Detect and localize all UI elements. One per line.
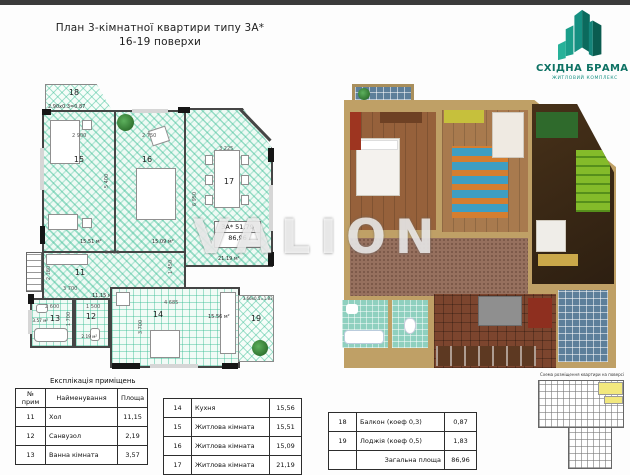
chair5-room17 — [241, 175, 249, 185]
chair3-room17 — [205, 195, 213, 205]
site-plan-bottom-wing — [568, 427, 612, 469]
row-name: Кухня — [192, 399, 270, 418]
floorplan-2d: 18 2.90х0.3=0.87 15 2 900 15.51 м² 16 2 … — [0, 0, 310, 380]
explication-title: Експлікація приміщень — [50, 377, 136, 385]
col-num: № прим — [16, 389, 46, 408]
table-header-row: № прим Найменування Площа — [16, 389, 148, 408]
row-area: 2,19 — [118, 427, 148, 446]
loggia-area-calc: 3.66х0.5=1.83 — [243, 297, 273, 302]
render-kids-wardrobe — [492, 112, 524, 158]
counter-room14 — [220, 292, 236, 354]
chair2-room17 — [205, 175, 213, 185]
hall-niche — [26, 252, 42, 292]
dim-hall-vert2: 1 450 — [168, 260, 174, 274]
row-name: Лоджія (коеф 0,5) — [357, 432, 445, 451]
dim-room13: 2 600 — [45, 304, 59, 310]
row-name: Ванна кімната — [46, 446, 118, 465]
bed-room16 — [136, 168, 176, 220]
room-15-area: 15.51 м² — [80, 239, 102, 245]
chair1-room17 — [205, 155, 213, 165]
room-11-number: 11 — [72, 268, 88, 277]
dim-room17: 3 225 — [219, 146, 233, 152]
room-17-number: 17 — [220, 177, 238, 186]
table-row: 16 Житлова кімната 15,09 — [164, 437, 302, 456]
total-label: Загальна площа — [357, 451, 445, 470]
room-14-number: 14 — [150, 310, 166, 319]
render-desk-white — [536, 220, 566, 252]
col-area: Площа — [118, 389, 148, 408]
render-kids-bench — [444, 110, 484, 123]
dim-hall-vert: 2 180 — [46, 266, 52, 280]
window-room13-left — [28, 310, 32, 334]
render-bathroom — [342, 300, 388, 348]
table-row: 19 Лоджія (коеф 0,5) 1,83 — [329, 432, 477, 451]
render-sink — [346, 304, 358, 314]
wardrobe-hall — [46, 254, 88, 265]
plant-loggia — [252, 340, 268, 356]
total-area: 86,96 — [445, 451, 477, 470]
row-area: 0,87 — [445, 413, 477, 432]
pier-1 — [42, 109, 51, 115]
row-num: 16 — [164, 437, 192, 456]
chair4-room17 — [241, 155, 249, 165]
chair-room15 — [82, 218, 92, 228]
dim-room15: 2 900 — [72, 133, 86, 139]
room-18-number: 18 — [66, 88, 82, 97]
row-num: 12 — [16, 427, 46, 446]
table-row: 14 Кухня 15,56 — [164, 399, 302, 418]
room-15-number: 15 — [70, 155, 88, 164]
dim-rooms-13-12-vert: 1 700 — [66, 312, 72, 326]
table-row: 13 Ванна кімната 3,57 — [16, 446, 148, 465]
logo-building-icon — [556, 8, 614, 62]
row-area: 1,83 — [445, 432, 477, 451]
render-balcony-bottom — [558, 290, 608, 362]
row-num: 13 — [16, 446, 46, 465]
brochure-page: План 3-кімнатної квартири типу 3А* 16-19… — [0, 0, 630, 475]
dim-rooms-15-16-vert: 5 400 — [104, 174, 110, 188]
pier-7 — [222, 363, 238, 369]
dim-hall2: 3 700 — [63, 286, 77, 292]
render-wc — [392, 300, 428, 348]
window-room15-left — [40, 148, 44, 190]
table-row-total: Загальна площа 86,96 — [329, 451, 477, 470]
row-name: Балкон (коеф 0,3) — [357, 413, 445, 432]
pier-2 — [178, 107, 190, 113]
row-area: 15,09 — [270, 437, 302, 456]
row-name: Житлова кімната — [192, 418, 270, 437]
row-area: 15,56 — [270, 399, 302, 418]
pier-3 — [268, 148, 274, 162]
row-area: 3,57 — [118, 446, 148, 465]
render-livingroom — [532, 104, 614, 284]
room-16-number: 16 — [138, 155, 156, 164]
pier-8 — [28, 294, 34, 304]
row-num: 18 — [329, 413, 357, 432]
render-rug-living — [538, 254, 578, 266]
window-room14-bottom — [150, 364, 198, 368]
row-area: 15,51 — [270, 418, 302, 437]
render-kitchen-counter — [436, 346, 536, 366]
room-19-number: 19 — [248, 314, 264, 323]
table-row: 18 Балкон (коеф 0,3) 0,87 — [329, 413, 477, 432]
row-name: Хол — [46, 408, 118, 427]
table-room14 — [150, 330, 180, 358]
table-row: 12 Санвузол 2,19 — [16, 427, 148, 446]
pier-5 — [40, 226, 45, 244]
room-12-number: 12 — [84, 312, 98, 321]
row-num: 14 — [164, 399, 192, 418]
room-13-number: 13 — [48, 314, 62, 323]
dim-room14: 4 685 — [164, 300, 178, 306]
dim-room17-vert: 6 950 — [192, 192, 198, 206]
site-plan-highlight-unit — [598, 382, 623, 395]
render-dresser — [380, 112, 422, 123]
watermark: VALION — [193, 210, 443, 265]
desk-room15 — [48, 214, 78, 230]
dim-room16: 2 750 — [142, 133, 156, 139]
row-name: Житлова кімната — [192, 456, 270, 475]
row-num: 11 — [16, 408, 46, 427]
table-row: 15 Житлова кімната 15,51 — [164, 418, 302, 437]
render-wardrobe-red — [350, 112, 361, 150]
room-12-area: 2.19 м² — [81, 334, 97, 339]
render-kitchen-cabinet — [528, 298, 552, 328]
logo-name: СХІДНА БРАМА — [536, 63, 630, 74]
render-kitchen — [434, 294, 556, 368]
row-num: 17 — [164, 456, 192, 475]
bathtub-room13 — [34, 328, 68, 342]
room-13-area: 3.57 м² — [32, 318, 48, 323]
render-toilet — [404, 318, 416, 334]
row-name: Санвузол — [46, 427, 118, 446]
row-num: 15 — [164, 418, 192, 437]
row-num: 19 — [329, 432, 357, 451]
render-pillows — [358, 140, 398, 150]
row-name: Житлова кімната — [192, 437, 270, 456]
room-14-area: 15.56 м² — [208, 314, 230, 320]
site-plan-highlight-unit2 — [604, 396, 623, 404]
col-name: Найменування — [46, 389, 118, 408]
plant-room16 — [117, 114, 134, 131]
row-num — [329, 451, 357, 470]
site-plan-caption: Схема розміщення квартири на поверсі — [536, 372, 628, 377]
dim-hall: 5 750 — [105, 250, 119, 256]
render-plant-balcony — [358, 88, 370, 100]
pier-6 — [112, 363, 140, 369]
chair6-room17 — [241, 195, 249, 205]
fridge-room14 — [116, 292, 130, 306]
dim-room12: 1 500 — [86, 304, 100, 310]
render-bathtub — [344, 330, 384, 344]
render-sofa-green — [536, 112, 578, 138]
render-kidsroom — [442, 110, 528, 232]
site-plan: Схема розміщення квартири на поверсі — [536, 370, 628, 472]
room-16-area: 15.09 м² — [152, 239, 174, 245]
row-area: 21,19 — [270, 456, 302, 475]
logo: СХІДНА БРАМА ЖИТЛОВИЙ КОМПЛЕКС — [534, 8, 630, 86]
table-row: 11 Хол 11,15 — [16, 408, 148, 427]
window-room16-top — [132, 109, 168, 113]
table-row: 17 Житлова кімната 21,19 — [164, 456, 302, 475]
dim-room14-vert: 3 700 — [138, 320, 144, 334]
nightstand-room15 — [82, 120, 92, 130]
row-area: 11,15 — [118, 408, 148, 427]
render-kitchen-table — [478, 296, 522, 326]
render-shelf-lime — [576, 150, 610, 212]
explication-table-2: 14 Кухня 15,56 15 Житлова кімната 15,51 … — [163, 398, 302, 475]
explication-table-1: № прим Найменування Площа 11 Хол 11,15 1… — [15, 388, 148, 465]
explication-table-3: 18 Балкон (коеф 0,3) 0,87 19 Лоджія (кое… — [328, 412, 477, 470]
